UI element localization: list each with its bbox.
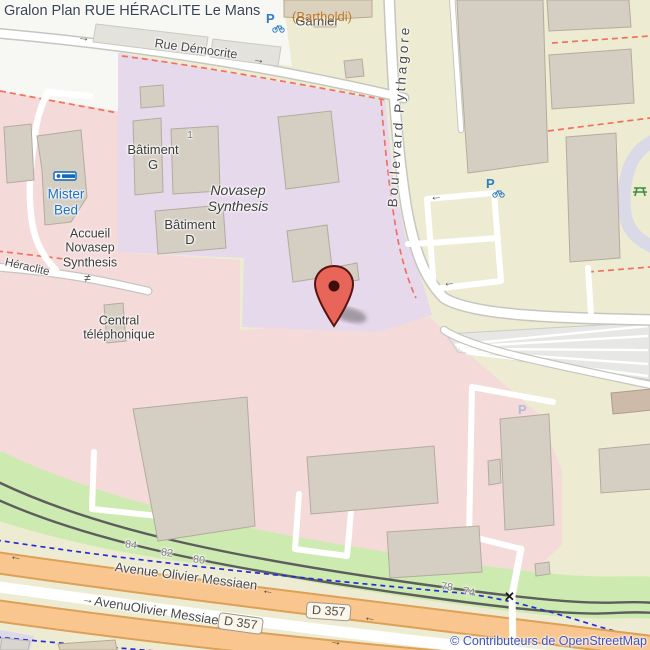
central-telephonique-building xyxy=(104,303,126,343)
page-title: Gralon Plan RUE HÉRACLITE Le Mans xyxy=(4,3,260,19)
parking-entrance-road xyxy=(408,243,430,244)
street-label-bartholdi: (Bartholdi) xyxy=(292,9,352,24)
parking-icon-faded: P xyxy=(518,402,527,417)
route-shield-d357: D 357 xyxy=(305,601,351,621)
bed-icon xyxy=(53,169,77,188)
building xyxy=(344,59,364,78)
parking-letter: P xyxy=(266,11,275,26)
osm-attribution-link[interactable]: © Contributeurs de OpenStreetMap xyxy=(450,634,647,648)
building xyxy=(457,0,548,173)
building xyxy=(488,459,501,485)
map-graphics xyxy=(0,0,650,650)
building xyxy=(599,444,650,493)
building xyxy=(500,414,554,530)
building xyxy=(611,389,650,414)
building xyxy=(535,562,550,576)
batiment-d-building xyxy=(155,205,226,254)
map-canvas: Gralon Plan RUE HÉRACLITE Le Mans (Barth… xyxy=(0,0,650,650)
building xyxy=(307,446,438,514)
service-stub-road xyxy=(588,268,591,314)
building xyxy=(140,85,164,108)
bicycle-parking-icon: P xyxy=(266,12,285,33)
bicycle-parking-icon: P xyxy=(486,177,505,198)
building xyxy=(547,0,631,31)
building xyxy=(549,49,634,109)
marker-pin-dot xyxy=(329,281,340,292)
parking-letter: P xyxy=(486,176,495,191)
building xyxy=(171,126,220,194)
gate-icon: ≠ xyxy=(84,271,91,285)
building xyxy=(278,111,339,189)
building xyxy=(4,124,34,183)
building xyxy=(566,133,620,262)
level-crossing-icon: ✕ xyxy=(504,589,515,605)
batiment-g-building xyxy=(133,118,163,195)
building xyxy=(387,526,482,578)
picnic-table-icon xyxy=(632,184,648,202)
